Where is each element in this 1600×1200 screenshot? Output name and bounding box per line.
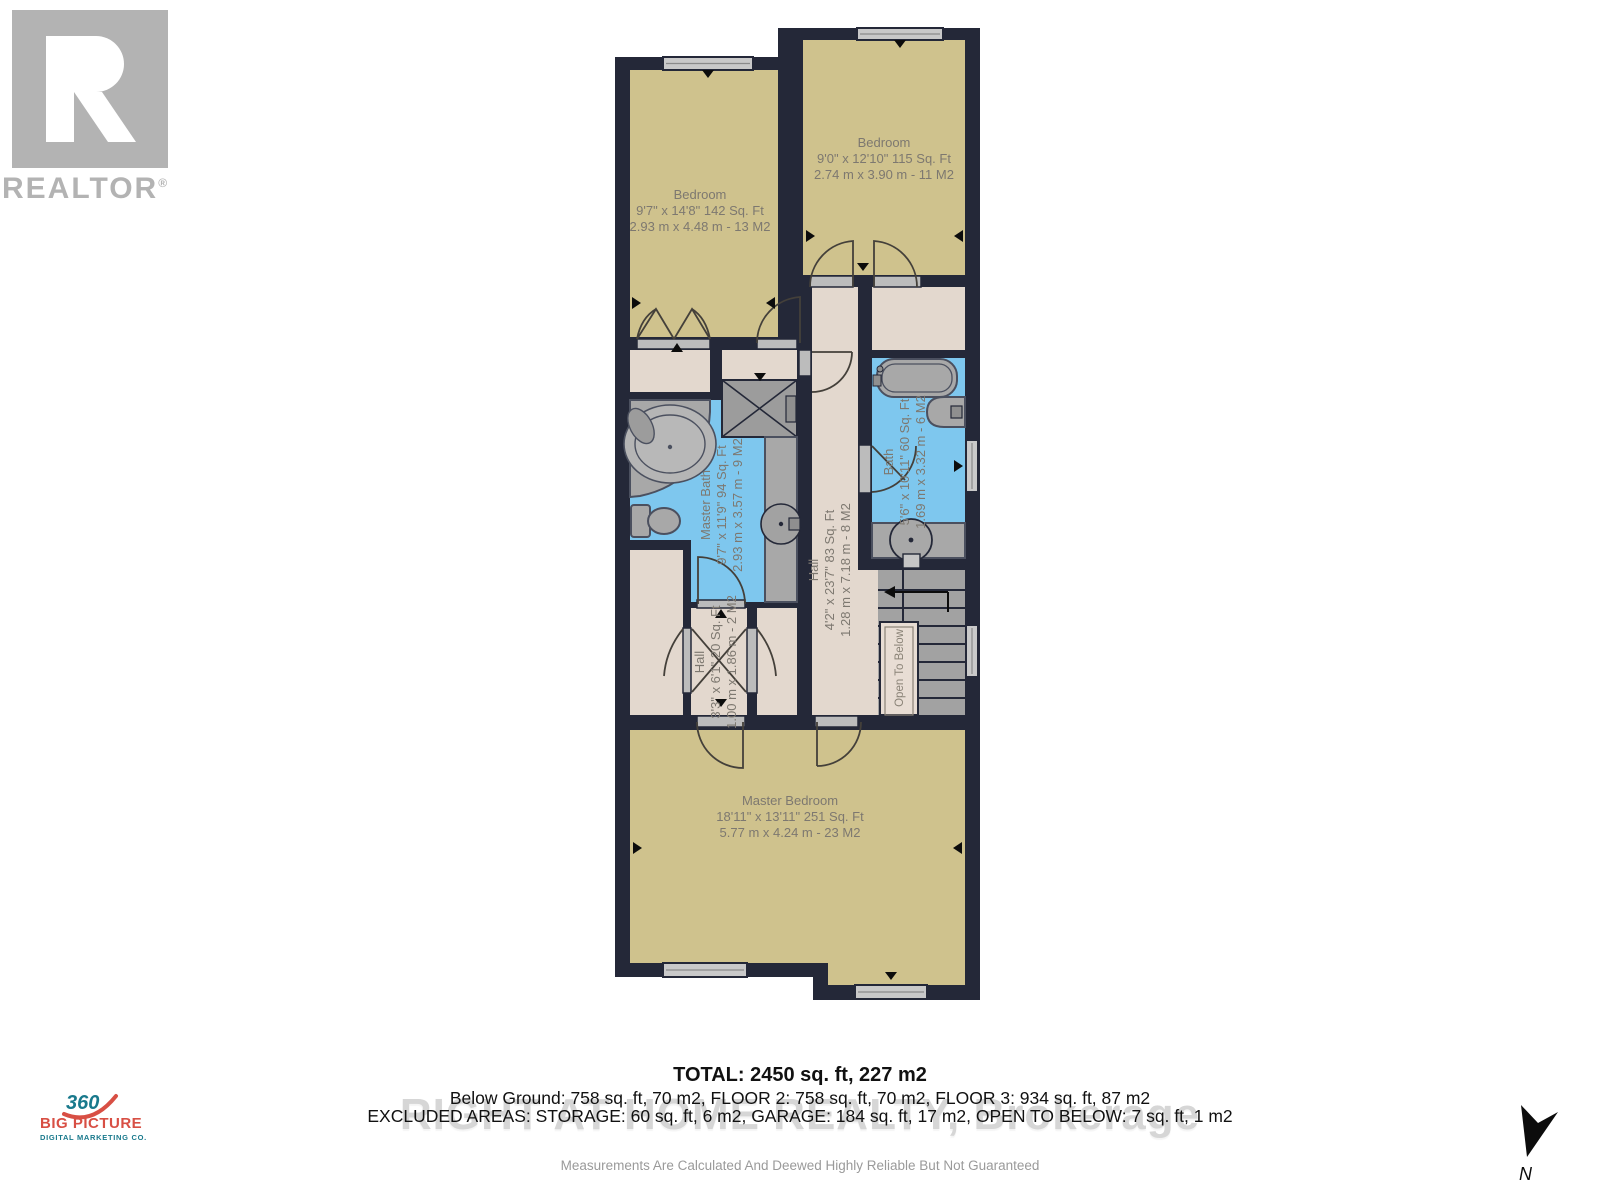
- svg-text:Open To Below: Open To Below: [894, 628, 906, 706]
- svg-text:1.00 m x 1.86 m - 2 M2: 1.00 m x 1.86 m - 2 M2: [724, 595, 739, 729]
- svg-text:18'11" x 13'11" 251 Sq. Ft: 18'11" x 13'11" 251 Sq. Ft: [716, 809, 864, 824]
- svg-text:Hall: Hall: [692, 651, 707, 674]
- door-sill-bath: [859, 445, 871, 493]
- floor-plan-drawing: Open To Below: [0, 0, 1600, 1200]
- door-sill-bedroom-right-1: [810, 276, 853, 287]
- svg-text:Master Bath: Master Bath: [698, 470, 713, 540]
- svg-text:5.77 m x 4.24 m - 23 M2: 5.77 m x 4.24 m - 23 M2: [720, 825, 861, 840]
- door-sill-bifold: [637, 339, 710, 349]
- master-toilet-bowl-icon: [648, 508, 680, 534]
- svg-text:9'7" x 14'8" 142 Sq. Ft: 9'7" x 14'8" 142 Sq. Ft: [636, 203, 764, 218]
- svg-text:5'6" x 10'11" 60 Sq. Ft: 5'6" x 10'11" 60 Sq. Ft: [897, 398, 912, 525]
- floor-plan-page: REALTOR®: [0, 0, 1600, 1200]
- svg-text:Bath: Bath: [881, 449, 896, 476]
- door-sill-bedroom-left: [757, 339, 797, 349]
- closet-a-floor: [630, 350, 710, 392]
- svg-text:1.69 m x 3.32 m - 6 M2: 1.69 m x 3.32 m - 6 M2: [913, 395, 928, 529]
- svg-text:1.28 m x 7.18 m - 8 M2: 1.28 m x 7.18 m - 8 M2: [838, 503, 853, 637]
- closet-b-floor: [630, 550, 683, 715]
- staircase: Open To Below: [878, 570, 965, 715]
- disclaimer-line: Measurements Are Calculated And Deewed H…: [0, 1158, 1600, 1173]
- svg-text:Bedroom: Bedroom: [858, 135, 911, 150]
- shower-valve-icon: [786, 396, 796, 422]
- closet-c-floor: [757, 608, 797, 715]
- svg-text:4'2" x 23'7" 83 Sq. Ft: 4'2" x 23'7" 83 Sq. Ft: [822, 509, 837, 630]
- bath-tub-tap-icon: [873, 375, 881, 386]
- svg-text:Bedroom: Bedroom: [674, 187, 727, 202]
- svg-text:9'0" x 12'10" 115 Sq. Ft: 9'0" x 12'10" 115 Sq. Ft: [817, 151, 951, 166]
- bath-toilet-tank-icon: [903, 554, 920, 568]
- door-sill-mbr-2: [815, 716, 858, 727]
- svg-text:3'3" x 6'1" 20 Sq. Ft: 3'3" x 6'1" 20 Sq. Ft: [708, 605, 723, 719]
- door-sill-bedroom-right-2: [874, 276, 921, 287]
- room-master-bedroom-floor: [630, 730, 965, 985]
- laundry-closet-floor: [872, 287, 965, 350]
- door-sill-hall-small-right: [747, 628, 757, 693]
- svg-text:2.93 m x 3.57 m - 9 M2: 2.93 m x 3.57 m - 9 M2: [730, 438, 745, 572]
- excluded-areas-line: EXCLUDED AREAS: STORAGE: 60 sq. ft, 6 m2…: [0, 1106, 1600, 1127]
- svg-text:2.93 m x 4.48 m - 13 M2: 2.93 m x 4.48 m - 13 M2: [630, 219, 771, 234]
- open-to-below-label: Open To Below: [894, 628, 906, 706]
- svg-text:9'7" x 11'9" 94 Sq. Ft: 9'7" x 11'9" 94 Sq. Ft: [714, 445, 729, 565]
- door-sill-hall-small-left: [683, 628, 691, 693]
- svg-text:2.74 m x 3.90 m - 11 M2: 2.74 m x 3.90 m - 11 M2: [814, 167, 954, 182]
- door-sill-vestibule-hall: [799, 350, 811, 376]
- total-area-line: TOTAL: 2450 sq. ft, 227 m2: [0, 1064, 1600, 1087]
- svg-text:Master Bedroom: Master Bedroom: [742, 793, 838, 808]
- svg-text:Hall: Hall: [806, 559, 821, 582]
